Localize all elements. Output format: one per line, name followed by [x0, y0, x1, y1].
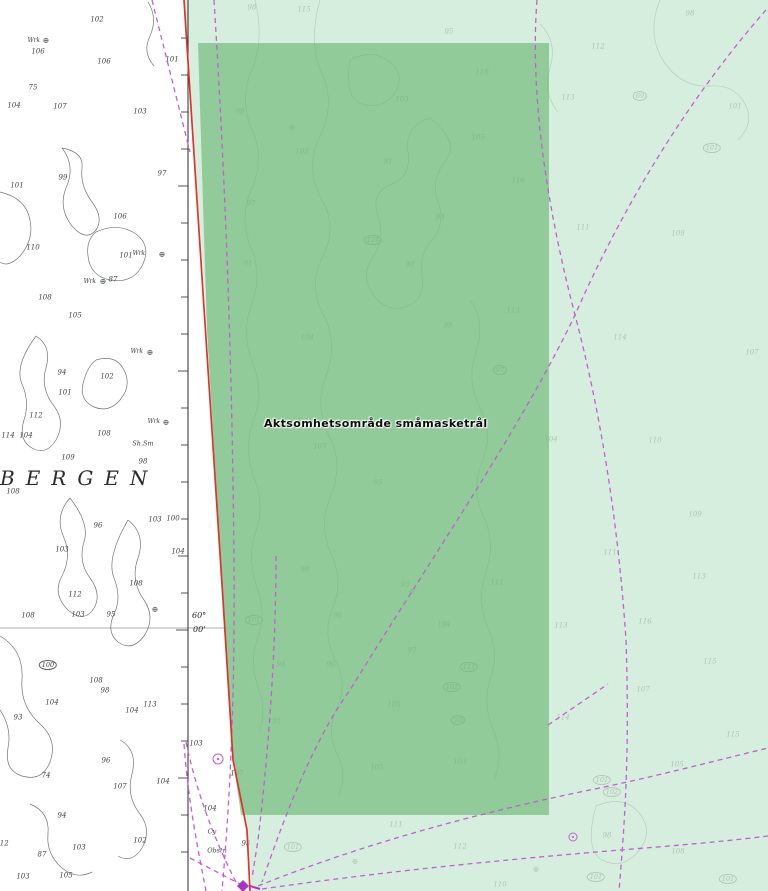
wreck-icon: ⊕ [159, 251, 166, 259]
wreck-icon: ⊕ [409, 588, 416, 596]
sounding: 91 [384, 159, 393, 166]
sounding: 101 [728, 104, 741, 111]
wreck-icon: ⊕ [352, 858, 359, 866]
sounding: 111 [603, 550, 616, 557]
sounding: 111 [490, 580, 503, 587]
sounding: 113 [143, 702, 156, 709]
sounding: 106 [97, 59, 110, 66]
sounding: 99 [59, 175, 68, 182]
sounding: 101 [58, 390, 71, 397]
sounding: 114 [613, 335, 626, 342]
sounding: 91 [244, 261, 253, 268]
circled-sounding: 93 [451, 715, 465, 725]
sounding: 94 [58, 370, 67, 377]
sounding: 110 [493, 882, 506, 889]
sounding: 105 [471, 135, 484, 142]
sounding: 105 [59, 873, 72, 880]
sounding: 104 [156, 779, 169, 786]
sounding: 103 [453, 759, 466, 766]
sounding: 104 [437, 622, 450, 629]
circled-sounding: 124 [364, 235, 382, 245]
seabed-note-shells: Sh.Sm [132, 441, 153, 448]
sounding: 96 [94, 523, 103, 530]
sounding: 97 [158, 171, 167, 178]
circled-sounding: 121 [460, 662, 478, 672]
sounding: 112 [68, 592, 81, 599]
circled-sounding: 101 [245, 615, 263, 625]
sounding: 108 [6, 489, 19, 496]
sounding: 107 [53, 104, 66, 111]
circled-sounding: 100 [39, 660, 57, 670]
sounding: 108 [671, 849, 684, 856]
sounding: 115 [703, 659, 716, 666]
sounding: 105 [68, 313, 81, 320]
wreck-icon: ⊕ [147, 349, 154, 357]
wreck-label: Wrk [28, 38, 40, 44]
wreck-icon: ⊕ [533, 866, 540, 874]
sounding: 96 [102, 758, 111, 765]
sounding: 114 [1, 433, 14, 440]
sounding: 101 [10, 183, 23, 190]
wreck-icon: ⊕ [289, 124, 296, 132]
sounding: 107 [636, 687, 649, 694]
sounding: 104 [544, 437, 557, 444]
sounding: 104 [45, 700, 58, 707]
sounding: 103 [133, 109, 146, 116]
sounding: 104 [125, 708, 138, 715]
sounding: 103 [72, 845, 85, 852]
sounding: 105 [387, 702, 400, 709]
nautical-chart: 1021011061067510410710310199971061101018… [0, 0, 768, 891]
sounding: 116 [511, 178, 524, 185]
sounding: 108 [97, 431, 110, 438]
sounding: 110 [26, 245, 39, 252]
wreck-icon: ⊕ [100, 278, 107, 286]
sounding: 102 [100, 374, 113, 381]
sounding: 107 [313, 444, 326, 451]
sounding: 95 [374, 480, 383, 487]
sounding: 104 [19, 433, 32, 440]
sounding: 87 [109, 277, 118, 284]
sounding: 109 [671, 231, 684, 238]
sounding: 115 [726, 732, 739, 739]
sounding: 103 [16, 874, 29, 881]
wreck-icon: ⊕ [152, 606, 159, 614]
sounding: 113 [506, 308, 519, 315]
sounding: 103 [148, 517, 161, 524]
wreck-label: Wrk [148, 419, 160, 425]
sounding: 98 [603, 833, 612, 840]
sounding: 108 [21, 613, 34, 620]
sounding: 98 [686, 11, 695, 18]
sounding: 103 [395, 97, 408, 104]
sounding: 98 [101, 688, 110, 695]
sounding: 97 [247, 201, 256, 208]
seabed-note-clay: Cy [208, 829, 217, 836]
sounding: 112 [453, 844, 466, 851]
sounding: 113 [554, 623, 567, 630]
circled-sounding: 101 [284, 842, 302, 852]
soundings-layer: 1021011061067510410710310199971061101018… [0, 0, 768, 891]
sounding: 99 [236, 109, 245, 116]
sounding: 95 [107, 612, 116, 619]
sounding: 95 [445, 29, 454, 36]
sounding: 103 [71, 612, 84, 619]
obstruction-label: Obstn [207, 848, 227, 855]
circled-sounding: 101 [587, 872, 605, 882]
sounding: 102 [90, 17, 103, 24]
sounding: 108 [300, 335, 313, 342]
sounding: 111 [389, 822, 402, 829]
sounding: 111 [576, 225, 589, 232]
circled-sounding: 97 [493, 365, 507, 375]
sounding: 97 [408, 648, 417, 655]
sounding: 75 [29, 85, 38, 92]
sounding: 108 [89, 678, 102, 685]
sounding: 96 [327, 662, 336, 669]
sounding: 112 [591, 44, 604, 51]
sounding: 98 [277, 662, 286, 669]
circled-sounding: 101 [593, 775, 611, 785]
sounding: 112 [29, 413, 42, 420]
sounding: 101 [165, 57, 178, 64]
sounding: 93 [14, 715, 23, 722]
sounding: 90 [406, 262, 415, 269]
sounding: 112 [0, 841, 9, 848]
sounding: 94 [58, 813, 67, 820]
circled-sounding: 102 [443, 682, 461, 692]
sounding: 105 [370, 765, 383, 772]
sounding: 103 [55, 547, 68, 554]
sounding: 91 [273, 719, 282, 726]
wreck-icon: ⊕ [43, 37, 50, 45]
sounding: 109 [61, 455, 74, 462]
sounding: 98 [139, 459, 148, 466]
sounding: 107 [113, 784, 126, 791]
sounding: 108 [38, 295, 51, 302]
sounding: 110 [475, 70, 488, 77]
sounding: 98 [248, 5, 257, 12]
sounding: 87 [38, 852, 47, 859]
sounding: 108 [129, 581, 142, 588]
sounding: 103 [189, 741, 202, 748]
circled-sounding: 69 [633, 91, 647, 101]
circled-sounding: 101 [703, 143, 721, 153]
sounding: 100 [166, 516, 179, 523]
circled-sounding: 102 [603, 787, 621, 797]
sounding: 96 [334, 613, 343, 620]
sounding: 99 [444, 323, 453, 330]
sounding: 102 [295, 149, 308, 156]
sounding: 101 [119, 253, 132, 260]
sounding: 105 [670, 762, 683, 769]
sounding: 107 [230, 771, 243, 778]
sounding: 104 [203, 806, 216, 813]
wreck-icon: ⊕ [163, 419, 170, 427]
sounding: 102 [133, 838, 146, 845]
sounding: 98 [301, 567, 310, 574]
sounding: 113 [692, 574, 705, 581]
sounding: 113 [561, 95, 574, 102]
sounding: 106 [113, 214, 126, 221]
sounding: 93 [242, 841, 251, 848]
sounding: 114 [556, 715, 569, 722]
sounding: 109 [688, 512, 701, 519]
circled-sounding: 101 [719, 874, 737, 884]
wreck-label: Wrk [133, 251, 145, 257]
sounding: 93 [436, 215, 445, 222]
sounding: 107 [745, 350, 758, 357]
sounding: 115 [297, 7, 310, 14]
sounding: 110 [648, 438, 661, 445]
sounding: 106 [31, 49, 44, 56]
sounding: 116 [638, 619, 651, 626]
wreck-label: Wrk [131, 349, 143, 355]
sounding: 74 [42, 773, 51, 780]
sounding: 104 [171, 549, 184, 556]
wreck-label: Wrk [84, 279, 96, 285]
sounding: 104 [7, 103, 20, 110]
